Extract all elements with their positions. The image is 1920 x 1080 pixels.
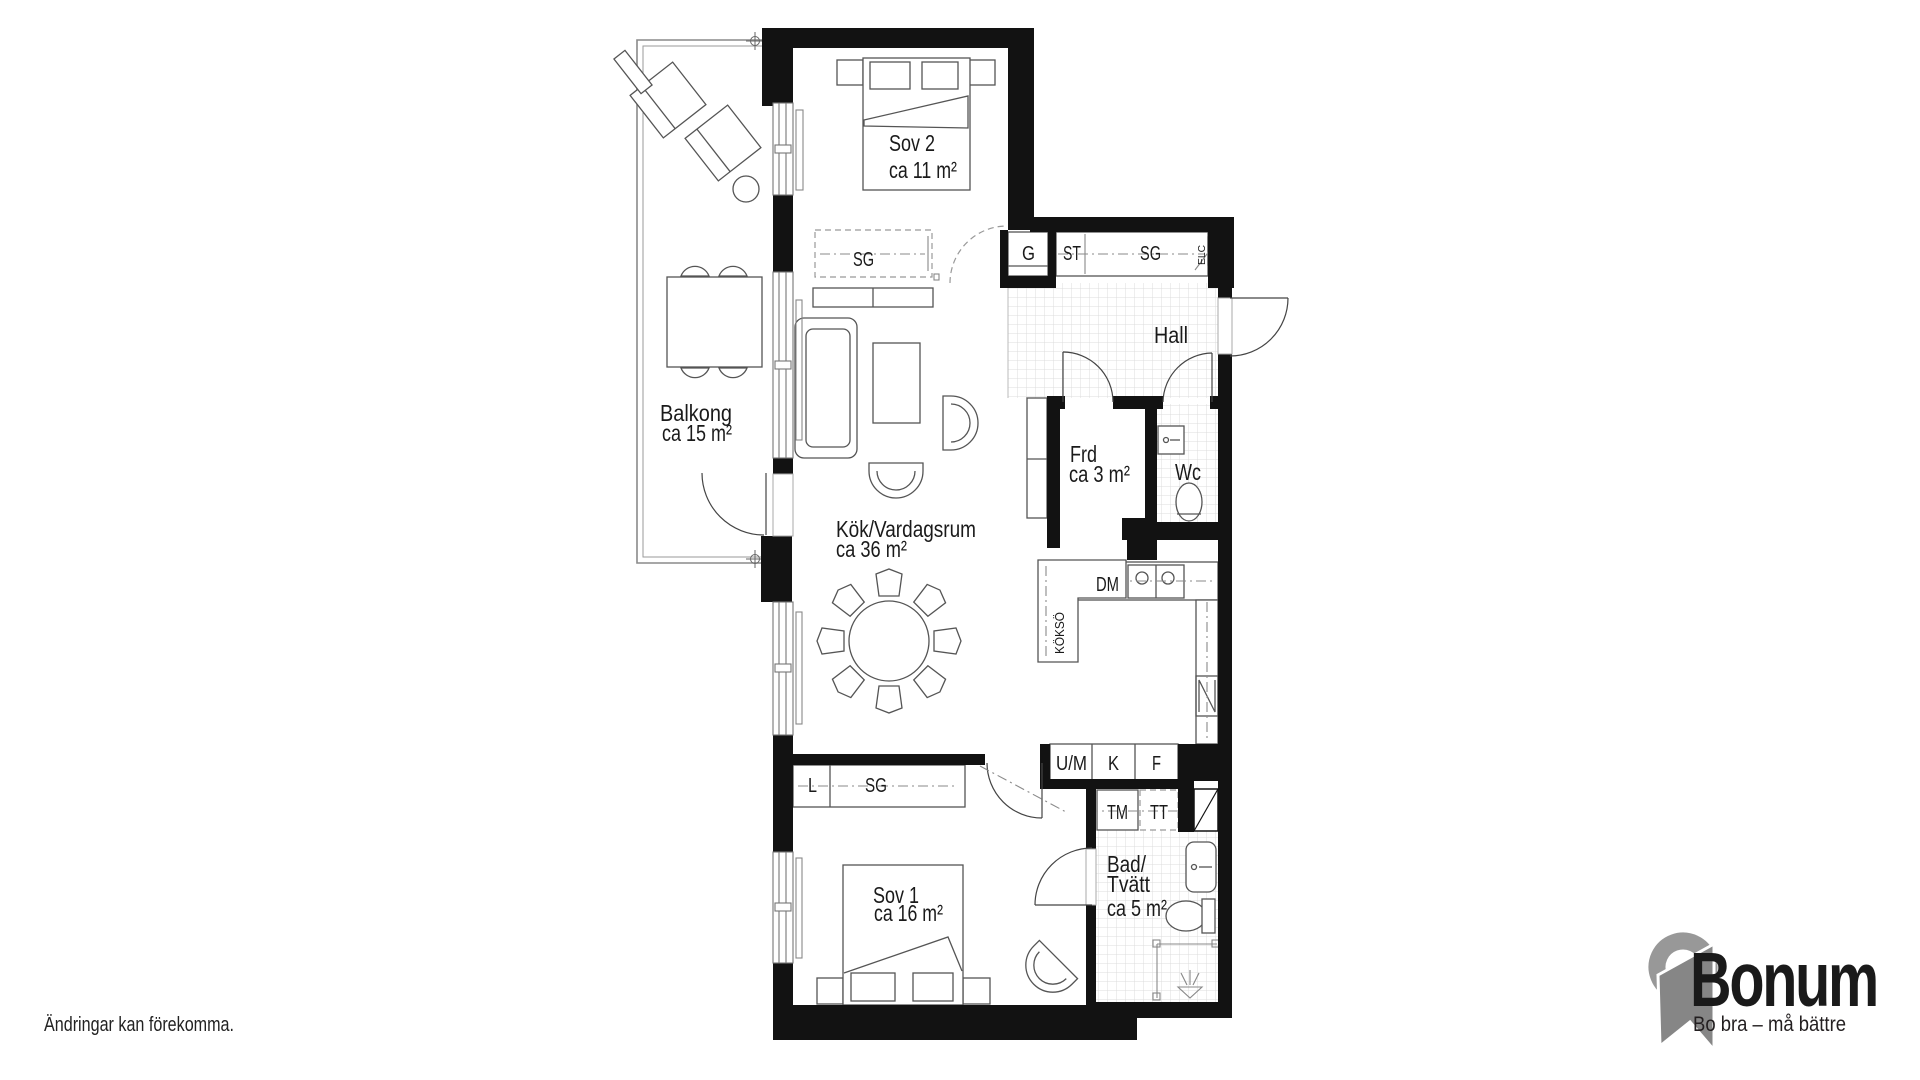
bonum-tagline: Bo bra – må bättre [1693,1013,1846,1036]
bonum-wordmark: Bonum [1690,937,1877,1023]
balcony-door [702,473,793,536]
f-label: F [1152,752,1161,775]
wc-label: Wc [1175,459,1201,485]
vent-shaft [1194,789,1218,831]
tm-label: TM [1107,801,1128,824]
kok-area: ca 36 m² [836,536,907,562]
sov2-area: ca 11 m² [889,157,957,183]
elc-label: ELC [1196,245,1208,265]
tt-label: TT [1150,801,1168,824]
bad-area: ca 5 m² [1107,895,1167,921]
sov2-sg-label: SG [853,248,874,271]
wc-toilet [1176,483,1202,521]
bath-door [1035,848,1096,905]
window [773,852,802,963]
hall-closets [1008,232,1217,276]
window [773,602,802,735]
balcony-lounge-chair [685,105,761,181]
window [773,103,803,195]
closet-sg-label: SG [1140,242,1161,265]
balcony [614,32,791,568]
closet-st-label: ST [1063,242,1081,265]
closet-g-label: G [1022,242,1035,265]
corner-armchair [1015,940,1078,1003]
kokso-label: KÖKSÖ [1053,612,1067,654]
armchair [869,463,923,498]
bad-label2: Tvätt [1107,871,1151,897]
floor-plan: Sov 2 ca 11 m² Balkong ca 15 m² Kök/Vard… [0,0,1920,1080]
k-label: K [1108,752,1119,775]
dm-label: DM [1096,573,1119,596]
balkong-area: ca 15 m² [662,420,732,446]
bonum-logo: Bonum Bo bra – må bättre [1648,932,1877,1050]
bath-toilet [1166,901,1206,931]
um-label: U/M [1056,752,1087,775]
disclaimer-text: Ändringar kan förekomma. [44,1014,234,1036]
frd-area: ca 3 m² [1069,461,1130,487]
sov2-label: Sov 2 [889,130,935,156]
balcony-round-table [733,176,759,202]
sov1-area: ca 16 m² [874,900,943,926]
balcony-dining-set [667,266,762,377]
entry-door [1218,298,1288,356]
l-label: L [808,774,817,797]
sov1-sg-label: SG [865,774,887,797]
armchair [943,396,978,450]
balcony-side-table [614,50,652,93]
sov1-furniture [793,765,1078,1005]
hall-label: Hall [1154,322,1188,348]
